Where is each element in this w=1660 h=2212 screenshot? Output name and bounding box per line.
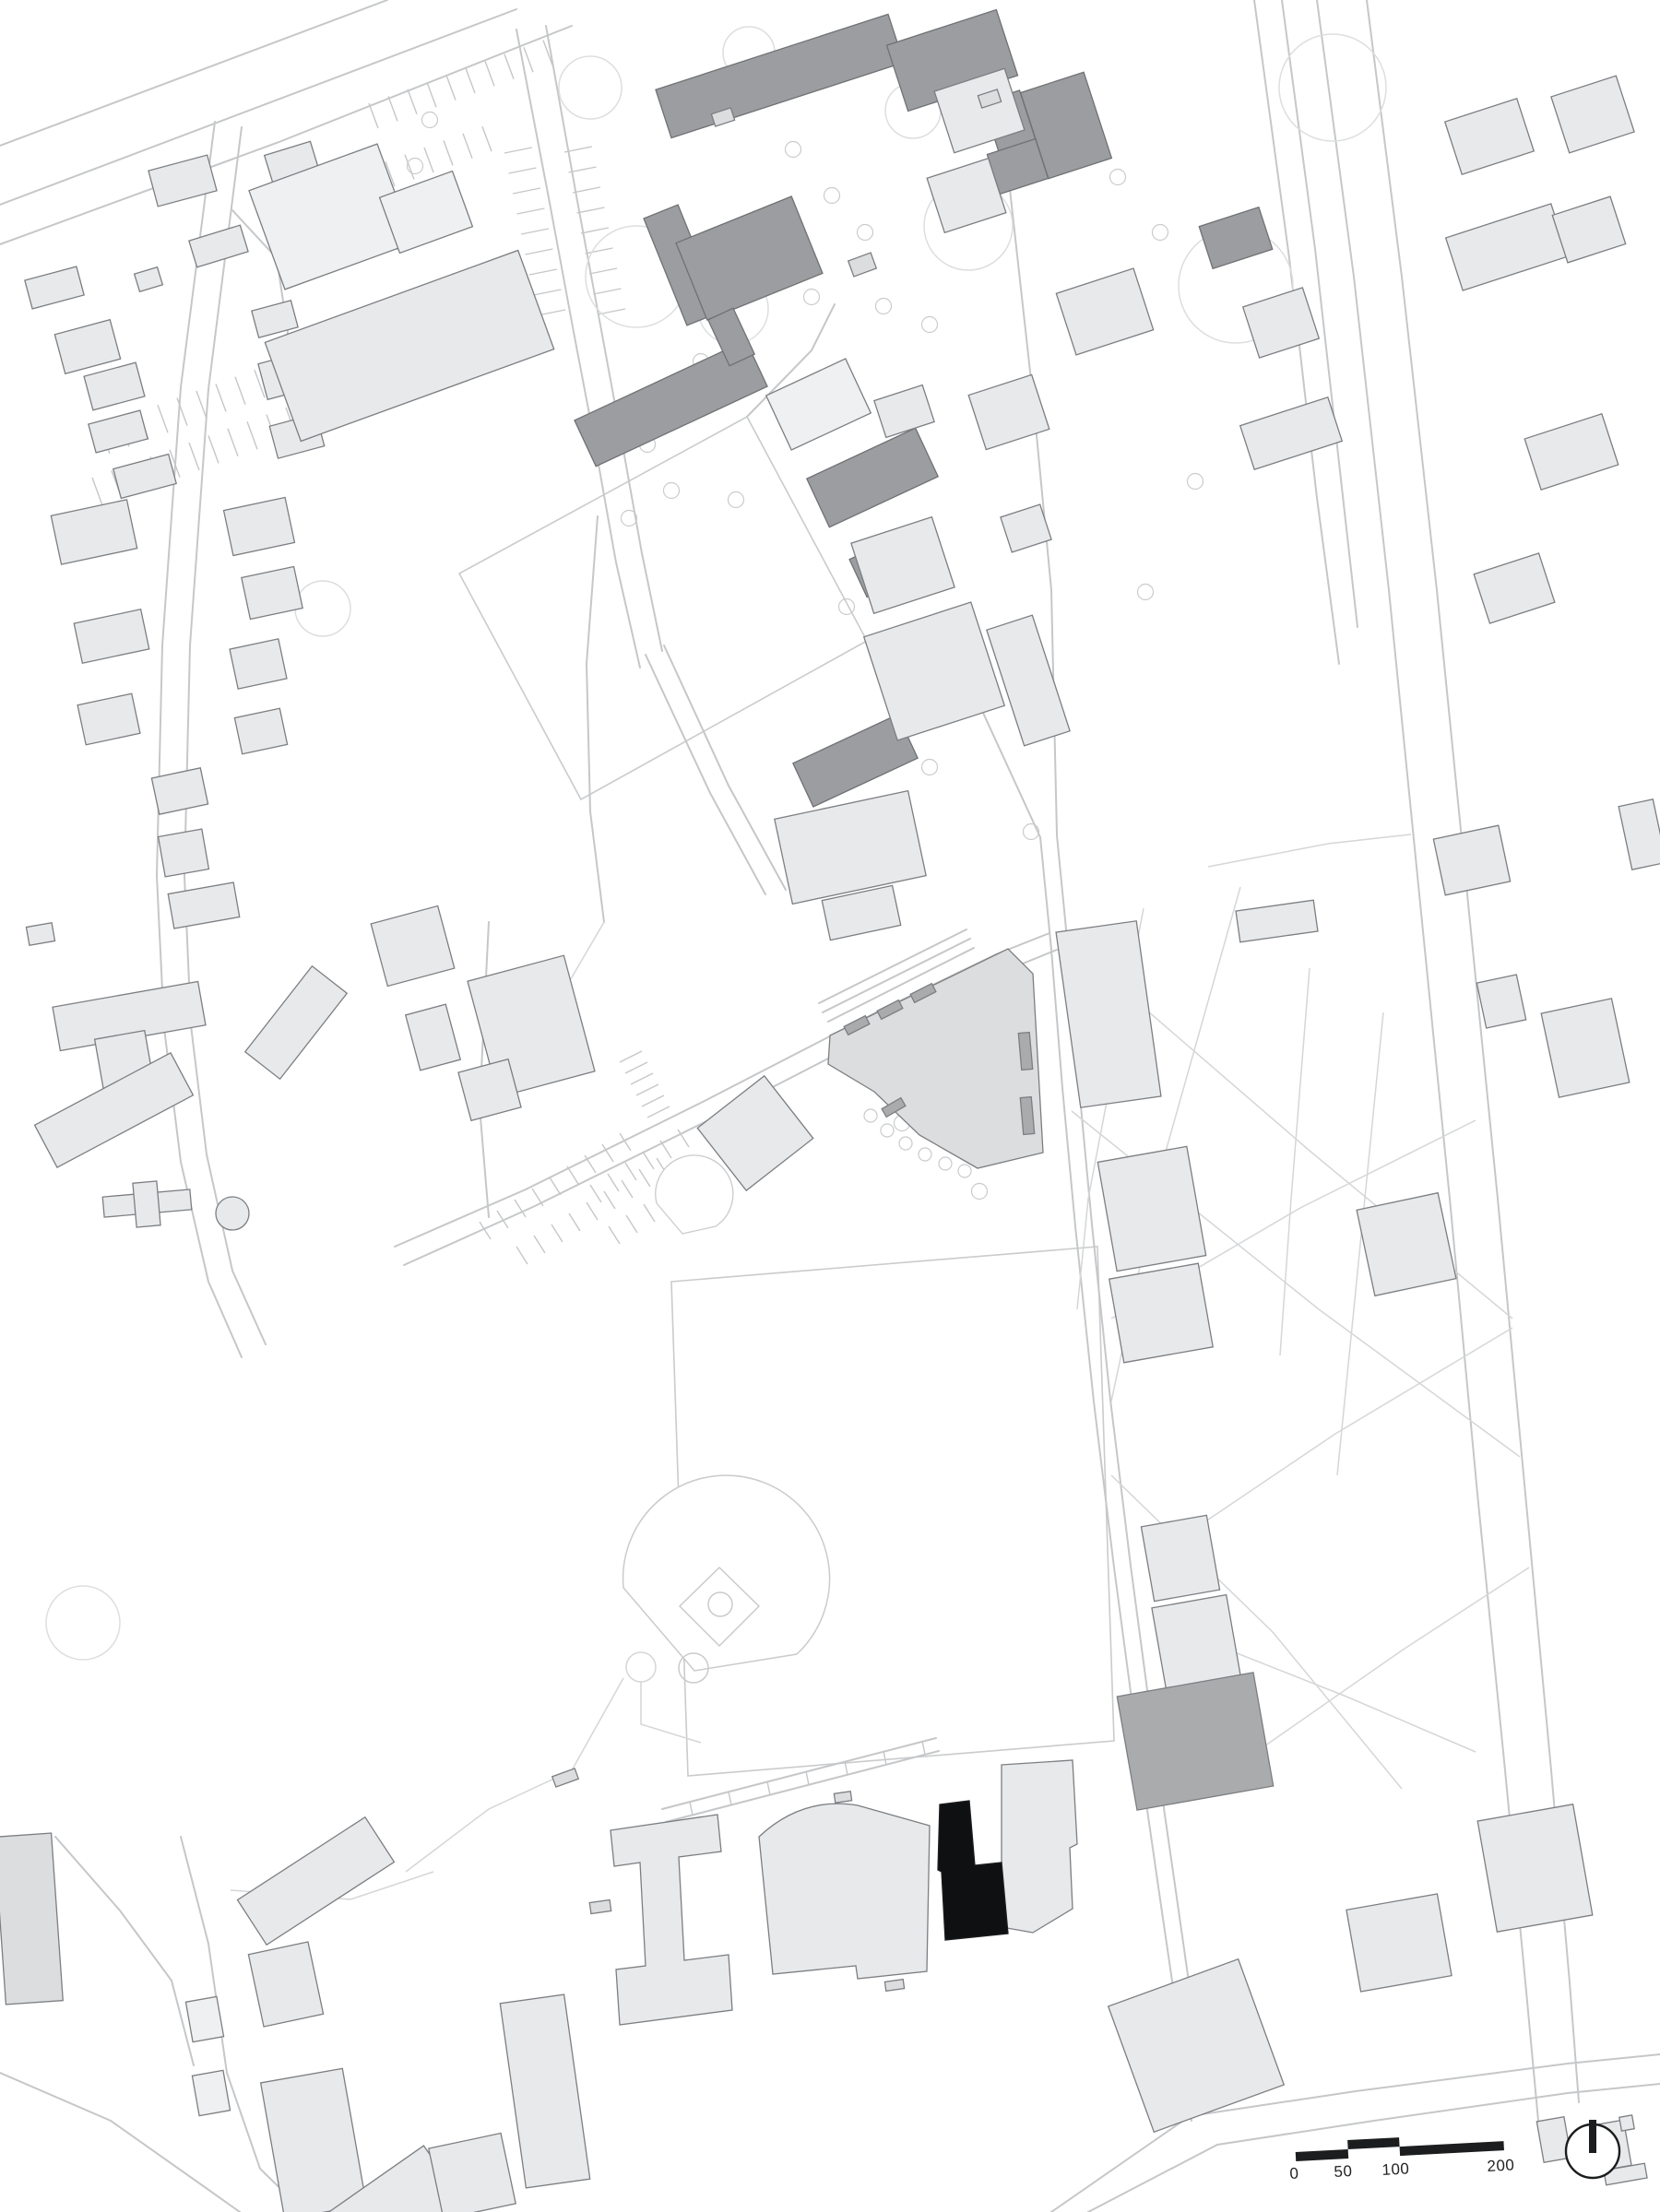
site-plan-map [0, 0, 1660, 2212]
parking-stall-line [626, 1215, 637, 1233]
building [54, 320, 120, 374]
scale-label-50: 50 [1334, 2162, 1353, 2182]
building [238, 1817, 395, 1946]
building [775, 791, 926, 905]
column [864, 1109, 877, 1122]
footpath-line [1280, 968, 1310, 1355]
parking-stall-line [521, 229, 549, 234]
building [25, 266, 84, 309]
building [1551, 76, 1634, 153]
tree [972, 1184, 988, 1200]
parking-stall-line [643, 1152, 654, 1169]
parking-stall-line [189, 443, 199, 470]
building [1619, 2115, 1634, 2131]
building [242, 566, 302, 619]
footpath-line [1208, 834, 1411, 867]
building [371, 905, 455, 986]
building [1109, 1263, 1213, 1363]
scale-bar-segment [1347, 2137, 1399, 2149]
building [1433, 825, 1510, 895]
parking-stall-line [551, 1224, 563, 1242]
column [899, 1137, 912, 1150]
parking-stall-line [642, 1095, 664, 1106]
building [1141, 1515, 1219, 1601]
building [1541, 999, 1630, 1097]
parking-stall-line [408, 89, 417, 114]
parking-stall-line [644, 1204, 655, 1222]
parking-stall-line [587, 1202, 598, 1220]
parking-stall-line [208, 435, 219, 463]
scale-bar [1295, 2132, 1504, 2161]
dark-building [656, 14, 904, 137]
parking-stall-line [569, 167, 597, 172]
tree [876, 299, 892, 314]
parking-stall-line [235, 377, 245, 405]
building [234, 708, 287, 754]
column [881, 1124, 894, 1137]
building [1346, 1894, 1452, 1992]
parking-stall-line [620, 1051, 642, 1062]
building [848, 253, 877, 277]
parking-stall-line [466, 68, 475, 93]
parking-stall-line [660, 1141, 671, 1158]
building [51, 500, 136, 564]
building [1474, 553, 1555, 623]
footpath-line [406, 1678, 623, 1872]
tree [858, 225, 873, 241]
parking-stall-line [534, 290, 562, 295]
parking-stall-line [594, 289, 622, 294]
building [189, 225, 248, 267]
parking-stall-line [589, 268, 617, 274]
building [159, 829, 209, 877]
tree [422, 112, 438, 128]
building [133, 1181, 160, 1227]
dark-building [807, 428, 938, 527]
building [1002, 1760, 1077, 1933]
building [500, 1994, 589, 2188]
road-line [157, 122, 242, 1357]
building [1524, 414, 1618, 490]
parking-stall-line [631, 1073, 653, 1084]
building [611, 1815, 732, 2025]
parking-stall-line [517, 208, 545, 214]
column [958, 1165, 971, 1177]
building [1446, 204, 1569, 290]
parking-stall-line [586, 248, 613, 254]
building [74, 609, 149, 663]
tree [786, 142, 801, 158]
building [834, 1792, 851, 1803]
dark-building [1199, 207, 1273, 269]
building [26, 923, 54, 946]
parking-stall-line [577, 207, 605, 213]
building [224, 497, 295, 555]
parking-stall-line [625, 1163, 636, 1180]
parking-stall-line [92, 478, 102, 505]
building [230, 639, 287, 689]
scale-label-100: 100 [1381, 2159, 1410, 2180]
practice-diamond [656, 1155, 733, 1234]
tree [1153, 225, 1168, 241]
tree [1188, 474, 1203, 490]
highlighted-building [938, 1801, 1008, 1940]
parking-stall-line [550, 1177, 561, 1195]
building [261, 2068, 367, 2212]
tree-canopy [559, 56, 622, 119]
tree [1024, 824, 1039, 840]
building [1097, 1146, 1205, 1271]
parking-stall-line [729, 1792, 731, 1805]
parking-stall-line [388, 96, 397, 121]
scale-label-200: 200 [1487, 2156, 1515, 2176]
parking-stall-line [636, 1084, 658, 1095]
parking-stall-line [228, 429, 238, 456]
building [874, 385, 934, 438]
building [0, 1833, 63, 2005]
parking-stall-line [806, 1771, 809, 1785]
building [135, 267, 163, 292]
building [1445, 99, 1535, 174]
building [248, 1942, 323, 2027]
open-field [459, 417, 867, 799]
parking-stall-line [567, 1166, 578, 1184]
parking-stall-line [485, 61, 494, 86]
parking-stall-line [609, 1226, 620, 1244]
building [429, 2134, 516, 2212]
parking-stall-line [581, 228, 609, 233]
building [1056, 921, 1161, 1107]
parking-stall-line [369, 103, 378, 128]
building [759, 1804, 930, 1979]
building [406, 1004, 461, 1071]
building [185, 1996, 223, 2041]
column [939, 1157, 952, 1170]
tree [804, 290, 820, 305]
building [1056, 268, 1153, 355]
building [1236, 900, 1318, 941]
parking-stall-line [424, 148, 433, 172]
tree-canopy [295, 581, 350, 636]
building [987, 615, 1070, 746]
parking-stall-line [573, 187, 600, 193]
scale-label-0: 0 [1289, 2164, 1299, 2182]
parking-stall-line [529, 269, 557, 275]
building [1243, 288, 1320, 358]
parking-stall-line [196, 391, 207, 419]
building [89, 410, 148, 453]
parking-stall-line [247, 421, 257, 449]
parking-stall-line [526, 249, 553, 254]
parking-stall-line [446, 76, 456, 101]
baseball-outfield [623, 1475, 830, 1671]
parking-stall-line [504, 148, 532, 153]
road-line [1317, 0, 1538, 2121]
tree [922, 760, 938, 775]
tree [1110, 170, 1126, 185]
parking-stall-line [216, 384, 226, 411]
parking-stall-line [625, 1062, 647, 1073]
parking-stall-line [482, 126, 492, 151]
building [148, 155, 217, 207]
building [168, 882, 240, 929]
parking-stall-line [639, 1169, 650, 1187]
parking-stall-line [524, 47, 533, 72]
building [851, 517, 954, 614]
column [919, 1148, 931, 1161]
building [1477, 1804, 1593, 1932]
road-line [0, 0, 387, 146]
parking-stall-line [590, 1185, 601, 1202]
scale-bar-segment [1400, 2141, 1504, 2156]
road-line [55, 1837, 194, 2065]
parking-stall-line [647, 1106, 670, 1118]
parking-stall-line [516, 1247, 528, 1264]
plaza-circle [626, 1652, 656, 1682]
site-plan-page: 0 50 100 200 [0, 0, 1660, 2212]
building [1476, 975, 1525, 1028]
building [1618, 799, 1660, 869]
building [77, 693, 140, 745]
parking-stall-line [608, 1174, 619, 1191]
building [216, 1197, 249, 1230]
dark-building [1020, 1097, 1034, 1135]
building [589, 1900, 611, 1914]
scale-bar-segment [1296, 2149, 1348, 2161]
building [864, 602, 1004, 740]
parking-stall-line [427, 82, 436, 107]
parking-stall-line [463, 134, 472, 159]
north-arrow-needle [1589, 2120, 1596, 2153]
road-line [1367, 0, 1579, 2102]
parking-stall-line [622, 1180, 633, 1198]
parking-stall-line [569, 1213, 580, 1231]
parking-stall-line [532, 1189, 543, 1206]
building [192, 2070, 230, 2115]
parking-stall-line [690, 1802, 693, 1816]
tree-canopy [46, 1586, 120, 1660]
building [1240, 397, 1343, 469]
building [252, 301, 298, 337]
building [1357, 1193, 1456, 1296]
parking-stall-line [509, 168, 537, 173]
tree [922, 317, 938, 333]
parking-stall-line [513, 188, 540, 194]
building [113, 455, 176, 499]
parking-stall-line [767, 1781, 770, 1795]
dark-building [1018, 1033, 1032, 1071]
building [84, 362, 145, 410]
tree [824, 188, 840, 204]
building [552, 1768, 579, 1787]
tree-canopy [1279, 34, 1386, 141]
parking-stall-line [604, 1191, 615, 1209]
building [245, 966, 347, 1080]
dark-building [1117, 1673, 1273, 1810]
parking-stall-line [444, 140, 453, 165]
building [766, 359, 871, 450]
parking-stall-line [534, 1236, 545, 1253]
building [884, 1980, 904, 1992]
parking-stall-line [504, 54, 514, 79]
tree [1138, 585, 1154, 600]
parking-stall-line [158, 405, 168, 432]
